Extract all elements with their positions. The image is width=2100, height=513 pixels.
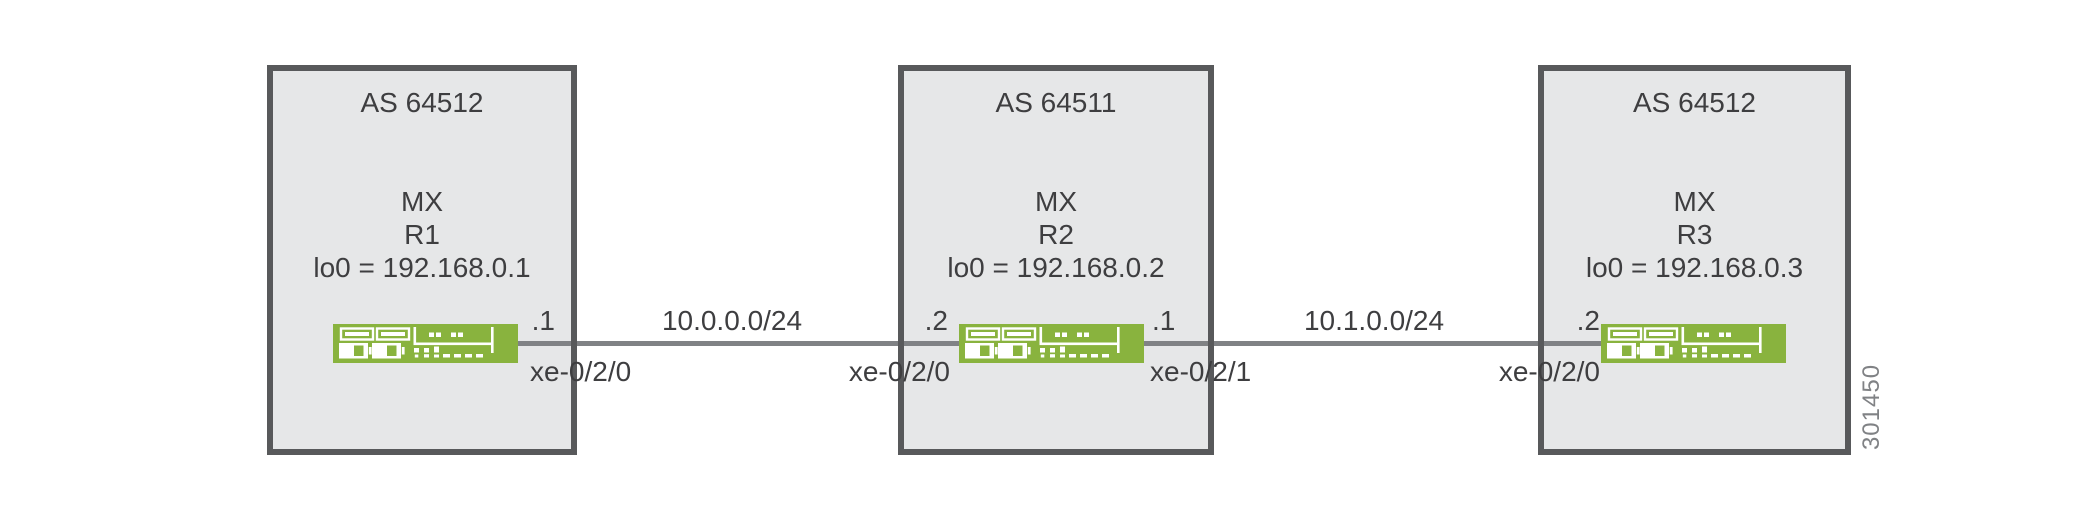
interface-label-r1-link1: xe-0/2/0 [530,357,730,387]
interface-label-r3-link2: xe-0/2/0 [1400,357,1600,387]
device-loopback-r3: lo0 = 192.168.0.3 [1538,251,1851,284]
subnet-label-link1: 10.0.0.0/24 [582,306,882,336]
figure-number: 301450 [1858,364,1886,450]
device-name-r1: R1 [267,218,577,251]
link-line-r2-r3 [1140,341,1606,346]
address-label-r2-link1: .2 [848,306,948,336]
device-block-r2: MX R2 lo0 = 192.168.0.2 [898,185,1214,284]
interface-label-r2-link1: xe-0/2/0 [750,357,950,387]
device-loopback-r1: lo0 = 192.168.0.1 [267,251,577,284]
device-platform-r2: MX [898,185,1214,218]
device-block-r1: MX R1 lo0 = 192.168.0.1 [267,185,577,284]
as-title-r1: AS 64512 [267,88,577,118]
device-block-r3: MX R3 lo0 = 192.168.0.3 [1538,185,1851,284]
mx-router-icon [333,324,518,363]
address-label-r2-link2: .1 [1152,306,1252,336]
device-platform-r1: MX [267,185,577,218]
as-title-r2: AS 64511 [898,88,1214,118]
device-loopback-r2: lo0 = 192.168.0.2 [898,251,1214,284]
subnet-label-link2: 10.1.0.0/24 [1224,306,1524,336]
link-line-r1-r2 [510,341,966,346]
interface-label-r2-link2: xe-0/2/1 [1150,357,1350,387]
device-name-r2: R2 [898,218,1214,251]
mx-router-icon [1601,324,1786,363]
address-label-r3-link2: .2 [1500,306,1600,336]
device-platform-r3: MX [1538,185,1851,218]
as-title-r3: AS 64512 [1538,88,1851,118]
mx-router-icon [959,324,1144,363]
device-name-r3: R3 [1538,218,1851,251]
network-topology-diagram: AS 64512 MX R1 lo0 = 192.168.0.1 AS 6451… [0,0,2100,513]
